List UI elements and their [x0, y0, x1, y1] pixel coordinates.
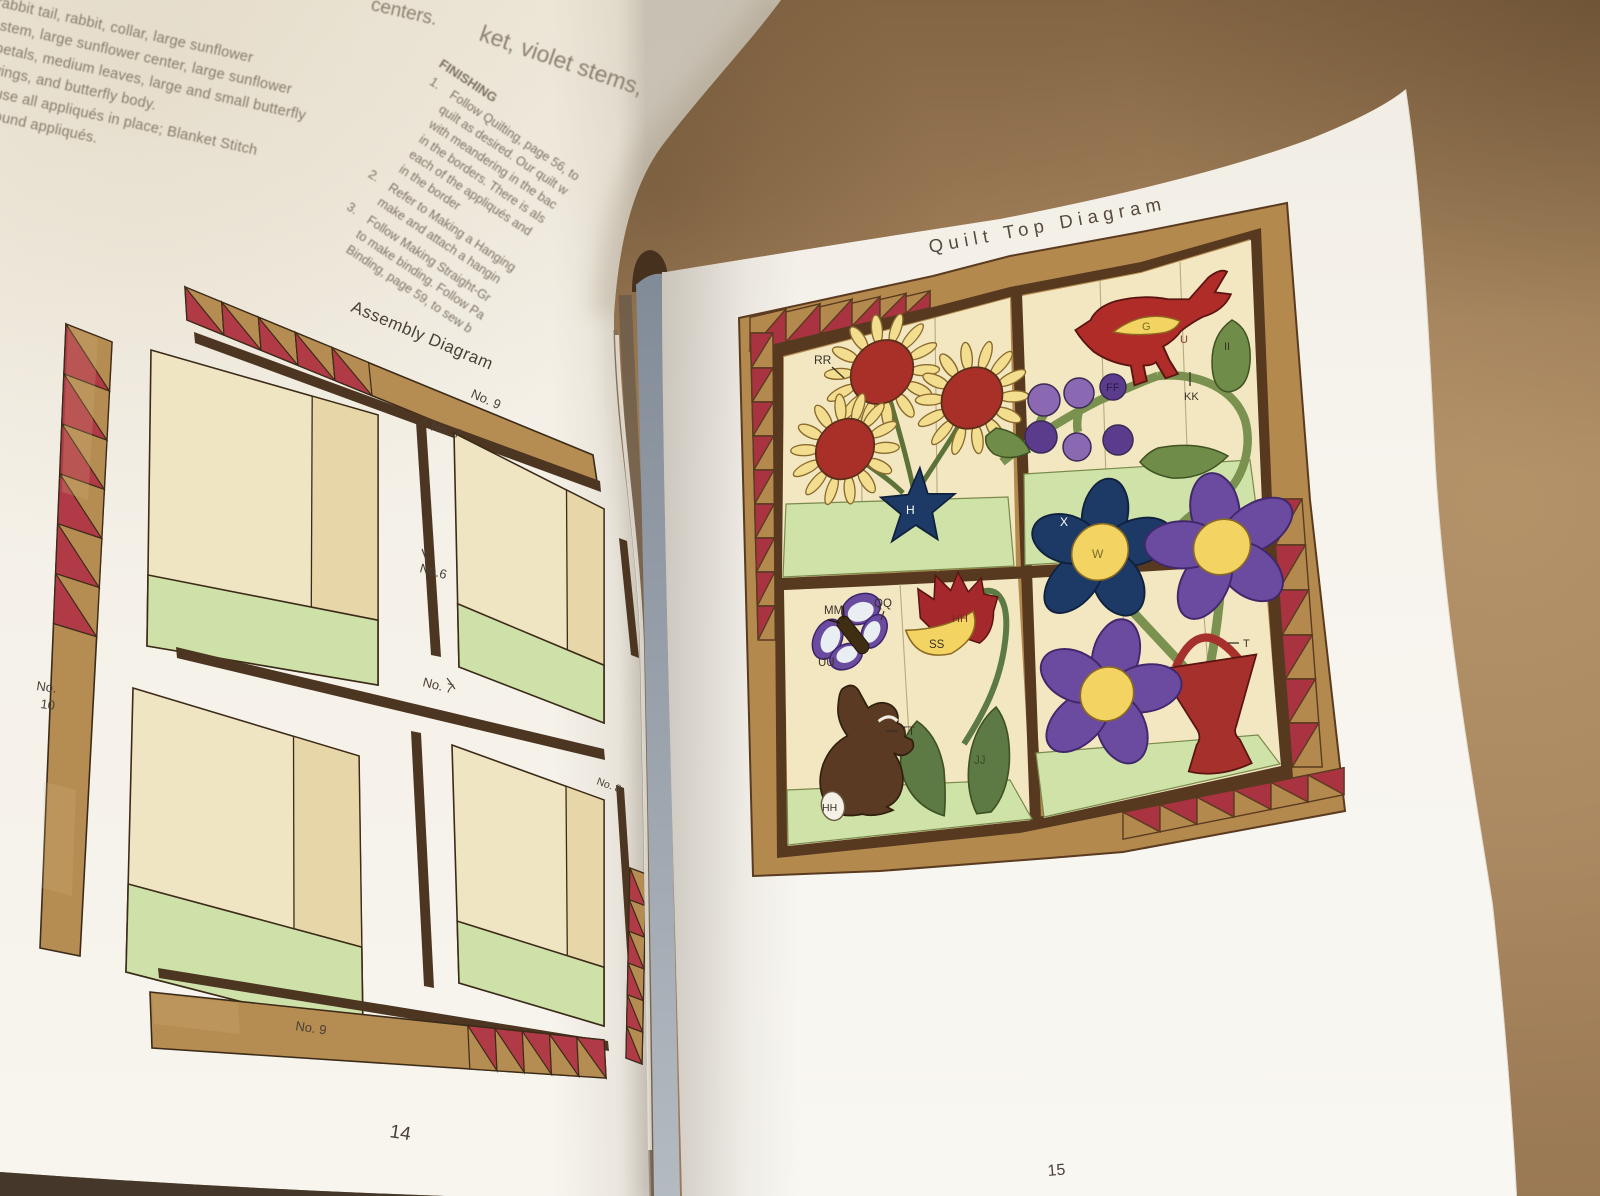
svg-text:UU: UU	[818, 657, 835, 669]
svg-text:SS: SS	[929, 639, 945, 651]
svg-text:U: U	[1180, 334, 1188, 346]
svg-text:T: T	[1243, 638, 1250, 650]
svg-text:10: 10	[40, 696, 56, 713]
svg-text:QQ: QQ	[874, 598, 892, 610]
svg-text:JJ: JJ	[974, 755, 986, 767]
svg-text:MM: MM	[824, 605, 843, 617]
svg-text:H: H	[906, 503, 915, 517]
svg-text:FF: FF	[1106, 382, 1120, 394]
svg-text:No.: No.	[36, 678, 58, 696]
svg-text:TT: TT	[901, 726, 915, 738]
svg-text:KK: KK	[1184, 391, 1199, 403]
svg-text:14: 14	[388, 1121, 413, 1145]
svg-text:X: X	[1060, 515, 1068, 529]
svg-text:15: 15	[1047, 1161, 1066, 1179]
svg-text:RR: RR	[814, 353, 832, 367]
svg-text:II: II	[1224, 341, 1230, 353]
svg-text:HH: HH	[822, 802, 837, 814]
svg-text:HH: HH	[952, 613, 968, 625]
svg-text:W: W	[1092, 547, 1104, 561]
svg-text:G: G	[1142, 321, 1151, 333]
